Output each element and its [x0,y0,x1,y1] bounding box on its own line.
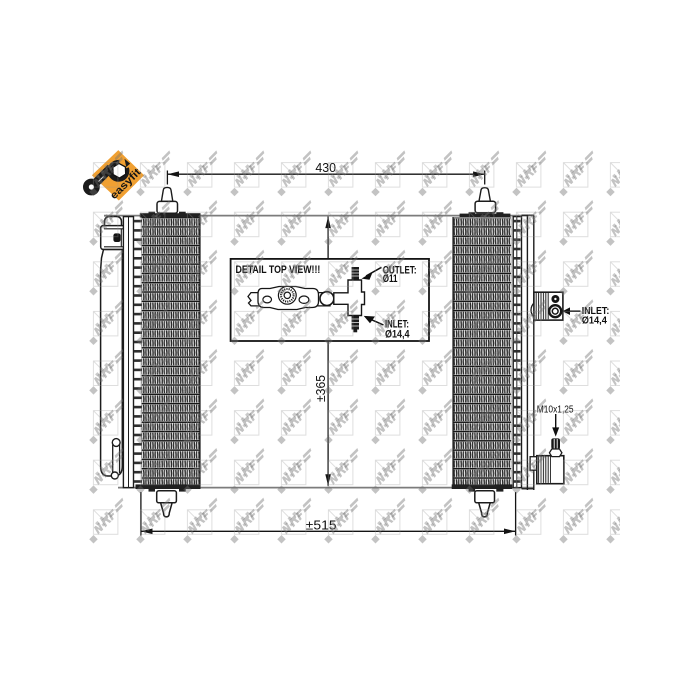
svg-text:Ø14,4: Ø14,4 [385,328,410,340]
svg-text:Ø14,4: Ø14,4 [582,315,607,327]
svg-text:±365: ±365 [314,375,328,402]
